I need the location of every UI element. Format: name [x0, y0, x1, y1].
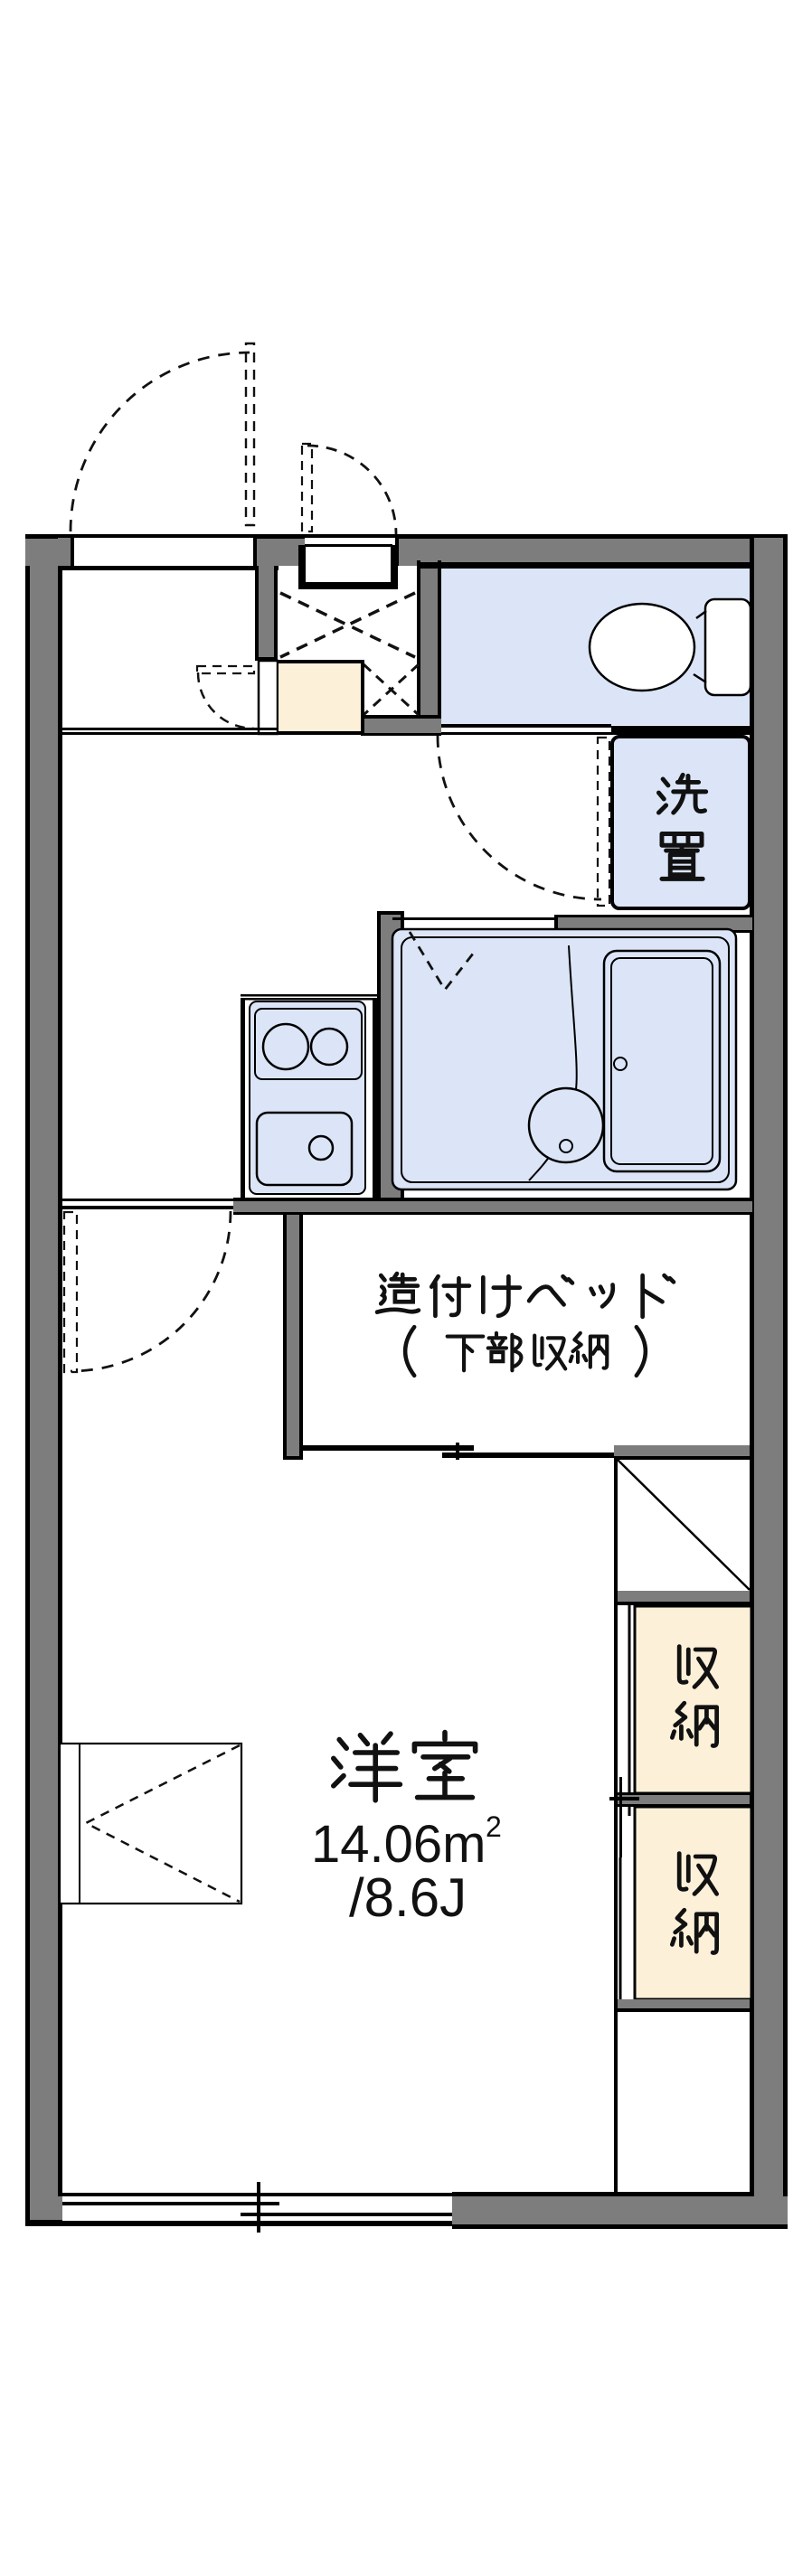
svg-text:14.06m: 14.06m — [311, 1815, 486, 1874]
svg-text:/8.6J: /8.6J — [349, 1867, 467, 1928]
svg-text:2: 2 — [486, 1810, 502, 1843]
